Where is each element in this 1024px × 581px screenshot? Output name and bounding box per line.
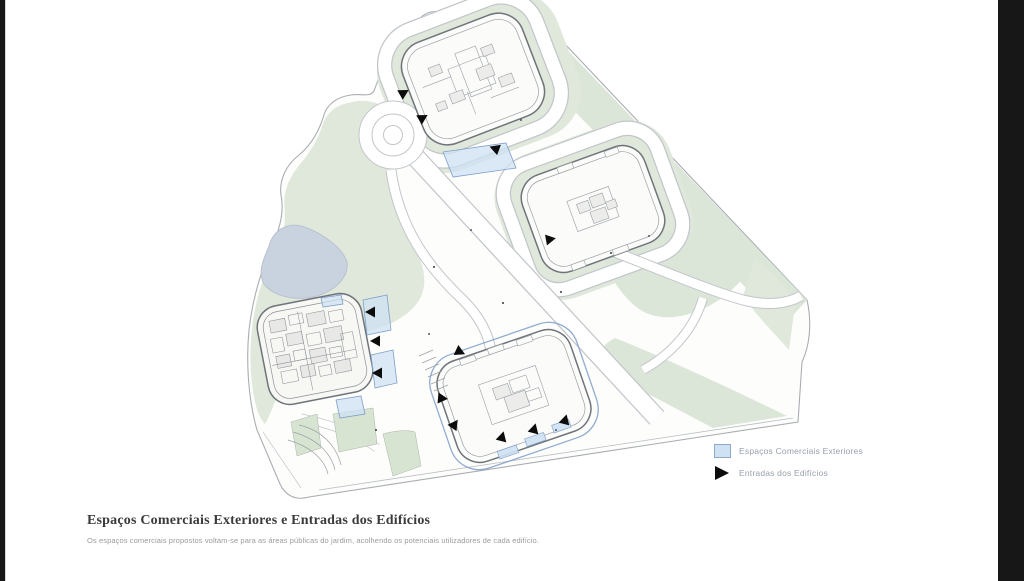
title-block: Espaços Comerciais Exteriores e Entradas… [87, 513, 847, 545]
legend-item-entrances: Entradas dos Edifícios [714, 465, 863, 480]
legend-item-commercial: Espaços Comerciais Exteriores [714, 443, 863, 458]
page-subtitle: Os espaços comerciais propostos voltam-s… [87, 536, 847, 545]
building-c [253, 290, 376, 408]
left-letterbox [0, 0, 5, 581]
commercial-swatch-icon [714, 444, 731, 458]
legend-label-entrances: Entradas dos Edifícios [739, 468, 828, 478]
right-letterbox [998, 0, 1024, 581]
site-plan [6, 0, 999, 581]
entrance-triangle-icon [714, 466, 731, 480]
legend: Espaços Comerciais Exteriores Entradas d… [714, 443, 863, 480]
legend-label-commercial: Espaços Comerciais Exteriores [739, 446, 863, 456]
slide-stage: Espaços Comerciais Exteriores Entradas d… [5, 0, 999, 581]
page-title: Espaços Comerciais Exteriores e Entradas… [87, 513, 847, 529]
